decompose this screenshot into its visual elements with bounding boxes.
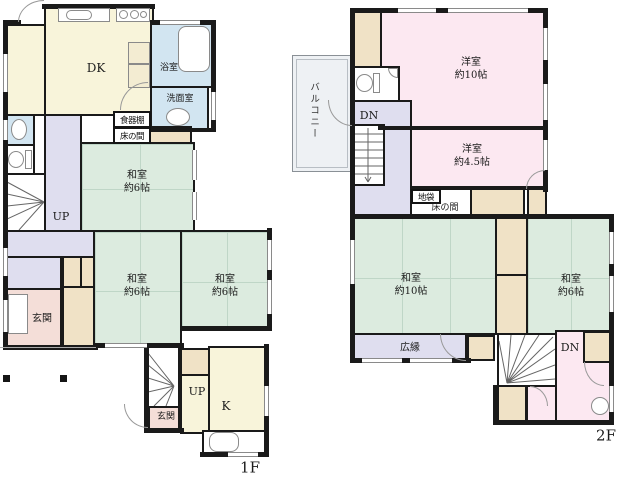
window-marker [192,150,197,180]
closet-hiroen [467,335,495,361]
closet-2f-col-a [495,216,528,276]
stove-burner-icon [130,10,139,19]
kitchen-sink-icon [209,432,239,452]
closet-1f-a [62,256,82,288]
shoe-cabinet-icon [8,294,28,334]
stairs-label-up-sub: UP [189,385,206,399]
toilet-bowl-icon [356,74,373,92]
bathtub-icon [178,26,210,72]
room-name: 洋室 [462,144,482,155]
wall-segment [378,126,545,130]
window-marker [362,358,402,363]
room-size: 約6帖 [212,287,238,298]
wall-segment [150,128,212,132]
porch-post [60,375,67,382]
window-marker [350,240,355,284]
room-label-hiroen: 広縁 [400,342,420,355]
room-label-yoshitsu-45: 洋室約4.5帖 [454,143,490,169]
door-arc [124,404,148,428]
room-size: 約4.5帖 [454,157,490,168]
room-label-genkan-main: 玄関 [32,313,52,326]
stove-burner-icon [140,11,147,18]
room-name: 和室 [401,273,421,284]
hallway-1f-b [5,256,62,290]
room-name: 和室 [127,274,147,285]
window-marker [448,8,528,13]
cabinet-icon [128,42,150,64]
toilet-bowl-icon [8,151,24,168]
room-size: 約10帖 [395,286,428,297]
room-label-washitsu-10: 和室約10帖 [395,272,428,298]
room-label-genkan-sub: 玄関 [157,412,175,424]
room-label-kitchen: K [222,399,231,415]
closet-kitchen [180,348,210,376]
jibukuro-label-box: 地袋 [411,189,441,204]
stairs-label-dn-room: DN [561,341,579,355]
window-marker [543,84,548,120]
window-marker [3,54,8,92]
wall-segment [180,326,272,331]
tokonoma-label-box: 床の間 [113,127,151,144]
room-size: 約10帖 [455,70,488,81]
wall-segment [493,385,498,425]
room-size: 約6帖 [558,287,584,298]
wall-segment [144,428,184,433]
window-marker [609,386,614,412]
window-marker [264,386,269,416]
window-marker [543,140,548,170]
window-marker [105,343,147,348]
room-label-balcony: バルコニー [307,82,319,140]
room-name: 和室 [561,274,581,285]
window-marker [609,232,614,264]
closet-2f-topleft [352,10,382,68]
window-marker [267,240,272,270]
room-label-washitsu-c: 和室約6帖 [212,273,238,299]
wall-segment [350,214,614,219]
washbasin-icon [166,108,190,126]
porch-post [3,375,10,382]
room-size: 約6帖 [124,287,150,298]
window-marker [398,8,436,13]
closet-2f-col-b [495,274,528,335]
cupboard-label-box: 食器棚 [113,111,151,128]
room-label-dk: DK [87,61,106,77]
room-label-washitsu-b: 和室約6帖 [124,273,150,299]
room-label-washroom: 洗面室 [166,94,193,106]
closet-2f-bl [497,385,527,422]
window-marker [410,358,452,363]
stove-burner-icon [119,10,128,19]
porch-edge-line [0,347,96,348]
closet-2f-br [583,331,612,363]
tokonoma-label: 床の間 [120,130,144,142]
toilet-tank-icon [373,73,380,93]
room-label-washitsu-a: 和室約6帖 [124,169,150,195]
window-marker [609,276,614,312]
cupboard-label: 食器棚 [120,114,144,126]
room-size: 約6帖 [124,183,150,194]
floor-label-1f: 1F [240,458,260,478]
stairs-2f-dn [497,333,557,387]
room-kitchen-main [208,346,267,434]
room-name: 和室 [127,170,147,181]
stairs-1f-lower [146,346,180,408]
window-marker [228,452,258,457]
closet-1f-c [62,286,97,348]
window-marker [3,120,8,140]
window-marker [267,280,272,314]
wall-segment [495,420,614,425]
window-marker [160,20,200,25]
floorplan-canvas: 食器棚 床の間 地袋 DK 浴室 洗面室 和室約6帖 和室約6帖 和室約6帖 U… [0,0,618,480]
room-storage-1f [5,24,46,116]
wall-segment [350,8,355,363]
room-kitchen-west [180,374,210,434]
window-marker [543,28,548,60]
round-sink-icon [591,397,609,415]
room-name: 洋室 [461,57,481,68]
window-marker [192,192,197,220]
counter-sink-icon [66,10,92,20]
tokonoma-2f-label: 床の間 [431,203,458,215]
toilet-tank-icon [25,150,32,169]
stairs-1f-main [5,173,46,232]
jibukuro-label: 地袋 [418,191,434,203]
basin-bowl-icon [11,119,27,140]
floor-label-2f: 2F [596,426,616,446]
window-marker [211,92,216,120]
stairs-label-up-main: UP [53,210,70,224]
room-label-bath: 浴室 [160,63,178,75]
window-marker [3,248,8,276]
stairs-label-dn-hall: DN [360,109,378,123]
room-label-washitsu-6: 和室約6帖 [558,273,584,299]
room-name: 和室 [215,274,235,285]
room-label-yoshitsu-10: 洋室約10帖 [455,56,488,82]
stairs-2f-up [352,124,385,186]
hallway-1f-a [5,230,97,258]
door-arc [18,0,44,22]
